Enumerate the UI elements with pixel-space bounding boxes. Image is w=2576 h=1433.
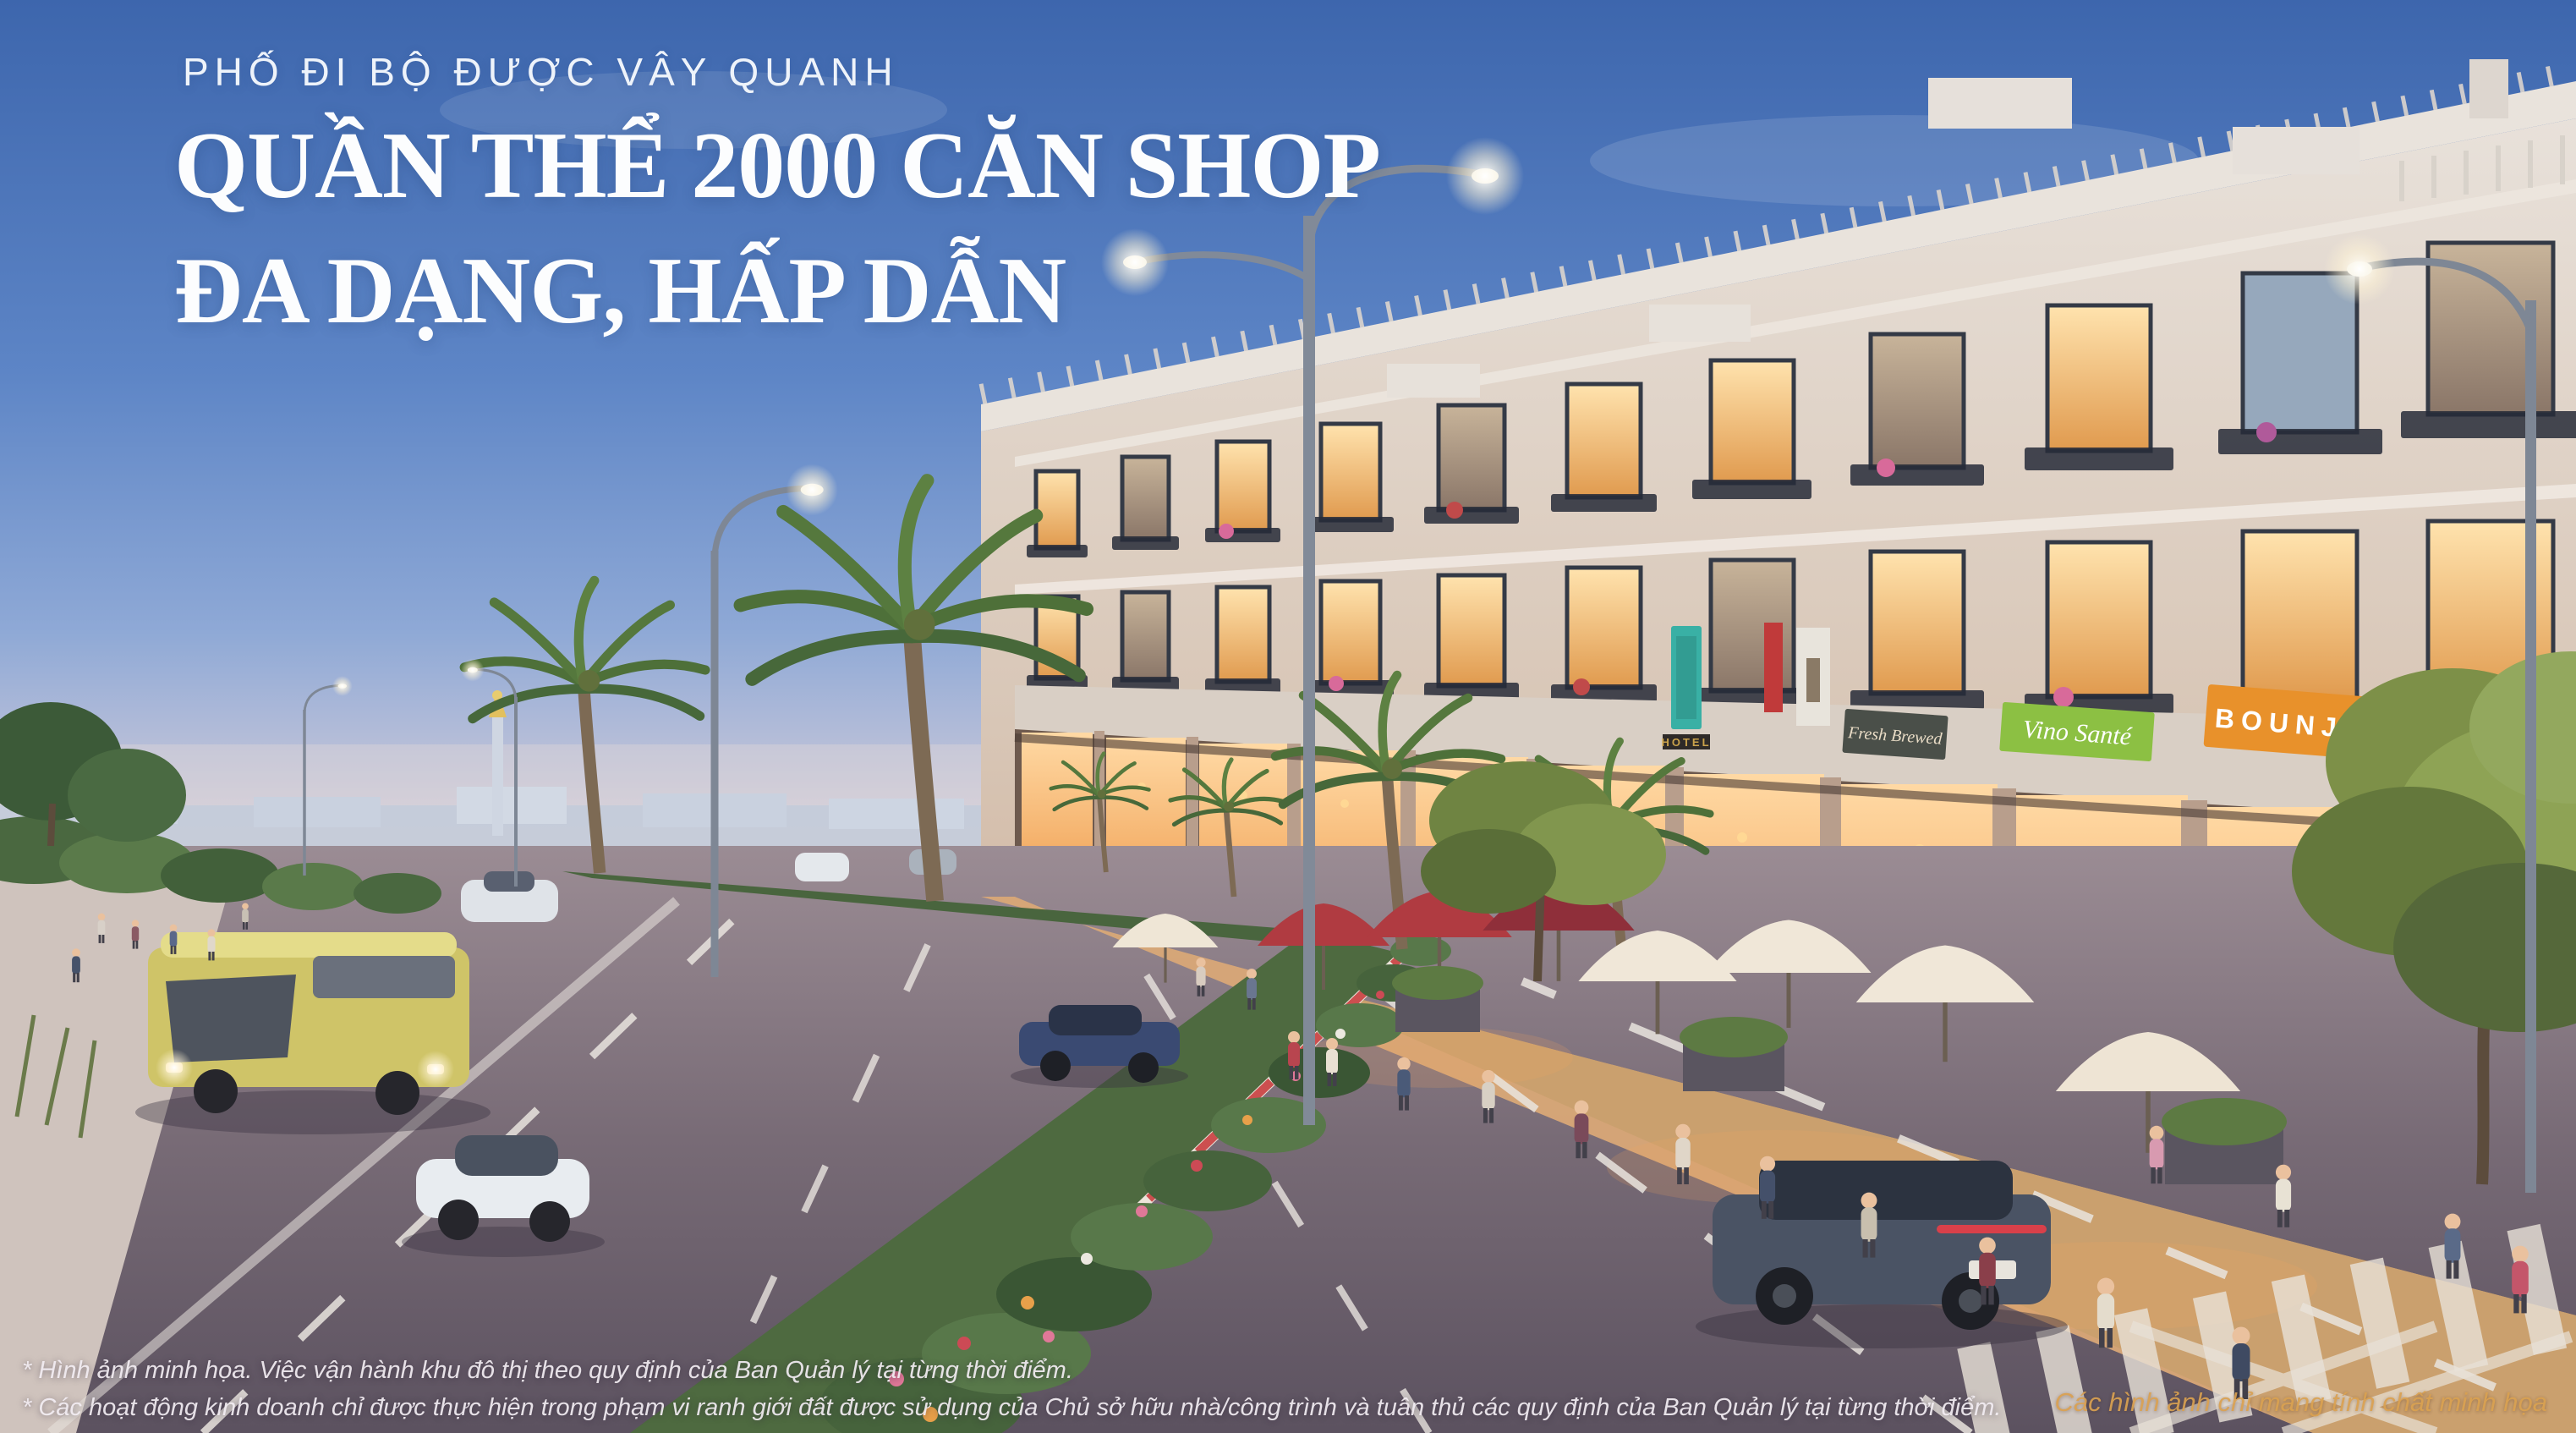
title-line-1: QUẦN THỂ 2000 CĂN SHOP bbox=[174, 103, 1380, 228]
title-line-2: ĐA DẠNG, HẤP DẪN bbox=[174, 228, 1380, 354]
shop-sign-fresh-brewed: Fresh Brewed bbox=[1842, 709, 1948, 760]
bus bbox=[135, 932, 491, 1134]
disclaimers: * Hình ảnh minh họa. Việc vận hành khu đ… bbox=[22, 1352, 2001, 1426]
shop-sign-hotel-label: HOTEL bbox=[1661, 736, 1711, 749]
disclaimer-line-2: * Các hoạt động kinh doanh chỉ được thực… bbox=[22, 1389, 2001, 1426]
vertical-banner-red bbox=[1764, 623, 1783, 712]
watermark: Các hình ảnh chỉ mang tính chất minh họa bbox=[2055, 1387, 2547, 1418]
disclaimer-line-1: * Hình ảnh minh họa. Việc vận hành khu đ… bbox=[22, 1352, 2001, 1389]
eyebrow: PHỐ ĐI BỘ ĐƯỢC VÂY QUANH bbox=[183, 49, 899, 95]
vertical-banner-poster bbox=[1796, 628, 1830, 726]
page-title: QUẦN THỂ 2000 CĂN SHOP ĐA DẠNG, HẤP DẪN bbox=[174, 103, 1380, 354]
hero-image: Fresh Brewed Vino Santé BOUNJOU apotek H… bbox=[0, 0, 2576, 1433]
